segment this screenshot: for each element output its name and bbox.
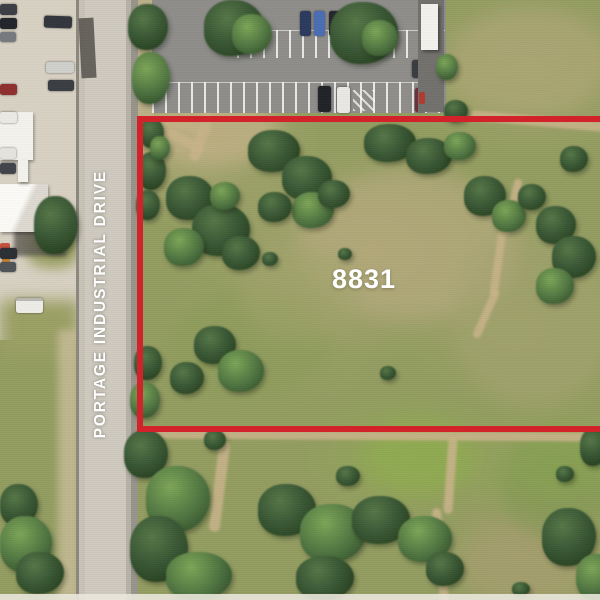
building-roof [18,160,28,182]
road-name-label: PORTAGE INDUSTRIAL DRIVE [92,170,110,438]
image-edge-strip [0,594,600,600]
car [0,32,16,42]
road-marking [78,18,96,79]
tree-cluster [580,428,600,466]
car [314,11,325,36]
car [0,18,17,29]
car [16,298,43,313]
car [0,262,16,272]
car [0,163,16,174]
car [419,92,425,104]
car [0,148,16,159]
aerial-map: 8831 PORTAGE INDUSTRIAL DRIVE [0,0,600,600]
car [0,4,17,15]
car [300,11,311,36]
car [0,112,17,123]
parcel-number-label: 8831 [332,264,396,295]
parking-stripes [152,82,442,113]
truck-trailer [421,4,438,50]
car [46,62,74,73]
car [0,84,17,95]
crosswalk-hatching [353,90,375,111]
car [318,86,331,112]
car [44,16,72,29]
car [48,80,74,91]
car [0,248,17,259]
car [337,87,350,113]
